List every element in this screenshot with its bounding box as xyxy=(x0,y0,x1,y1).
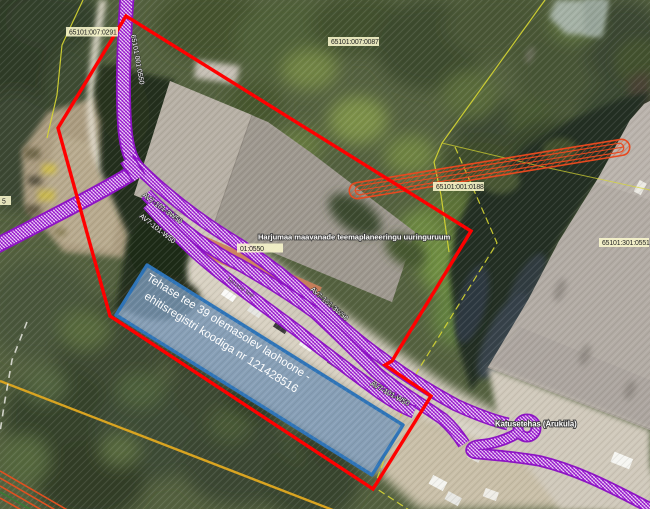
svg-text:65101:301:0551: 65101:301:0551 xyxy=(602,240,650,247)
svg-text:65101:007:0087: 65101:007:0087 xyxy=(331,39,379,46)
svg-text:65101:001:0188: 65101:001:0188 xyxy=(436,184,484,191)
svg-text:Harjumaa maavanade teemaplanee: Harjumaa maavanade teemaplaneeringu uuri… xyxy=(258,233,450,242)
svg-text:65101:007:0291: 65101:007:0291 xyxy=(69,30,117,37)
svg-text:01:0550: 01:0550 xyxy=(240,246,264,253)
svg-text:Katusetehas (Aruküla): Katusetehas (Aruküla) xyxy=(495,420,577,429)
svg-text:5: 5 xyxy=(2,199,6,206)
